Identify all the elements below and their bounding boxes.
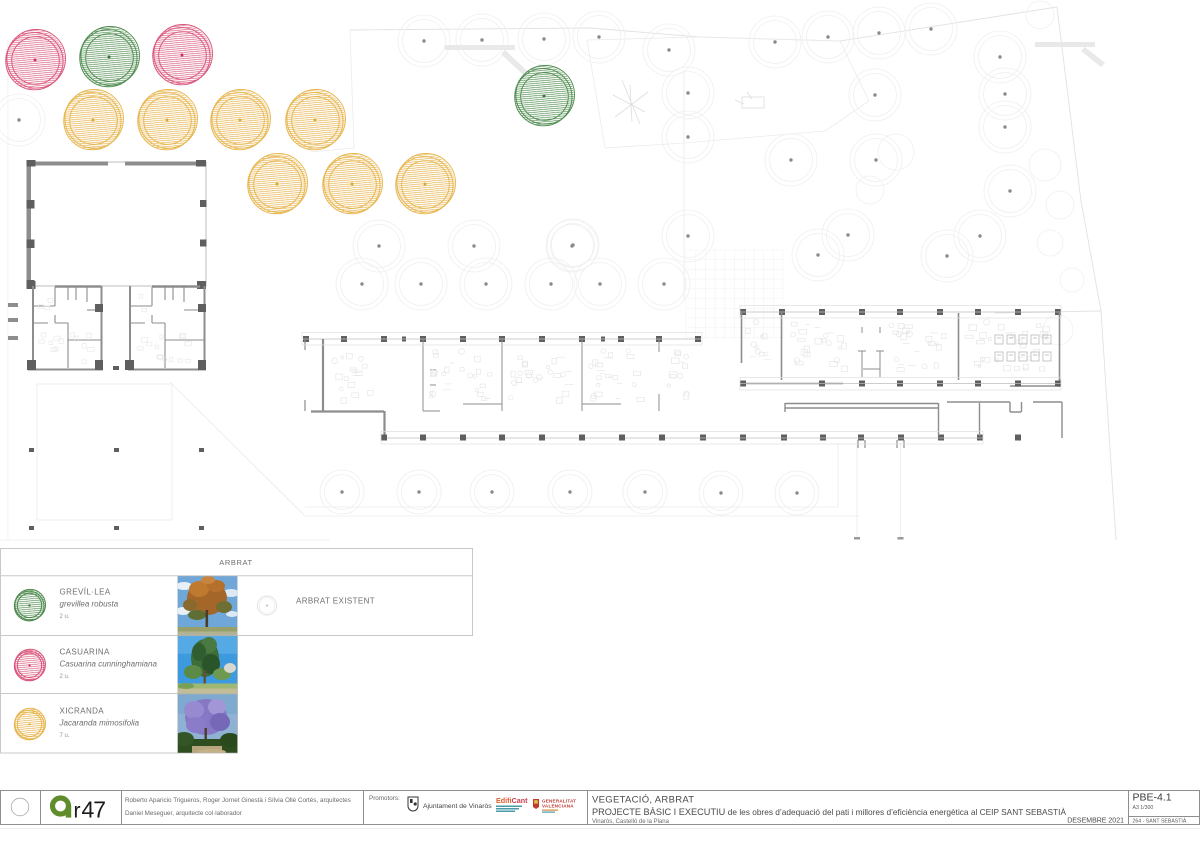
svg-text:ARBRAT EXISTENT: ARBRAT EXISTENT [296,597,375,606]
svg-text:7 u.: 7 u. [60,733,70,739]
svg-text:47: 47 [82,797,106,823]
svg-text:Casuarina cunninghamiana: Casuarina cunninghamiana [60,660,158,669]
svg-text:CASUARINA: CASUARINA [60,648,111,657]
svg-text:VEGETACIÓ, ARBRAT: VEGETACIÓ, ARBRAT [592,795,694,806]
svg-text:PBE-4.1: PBE-4.1 [1133,792,1172,804]
svg-text:Roberto Aparicio Trigueros, Ro: Roberto Aparicio Trigueros, Roger Jornet… [125,797,351,804]
svg-text:DESEMBRE 2021: DESEMBRE 2021 [1067,818,1124,825]
svg-text:Promotors:: Promotors: [369,795,400,802]
svg-text:GREVÍL·LEA: GREVÍL·LEA [60,588,111,597]
svg-text:2 u.: 2 u. [60,674,70,680]
svg-text:VALENCIANA: VALENCIANA [542,804,574,809]
svg-text:r: r [74,800,81,823]
svg-text:grevillea robusta: grevillea robusta [60,600,119,609]
svg-text:EdifiCant: EdifiCant [496,796,528,805]
svg-text:Daniel Meseguer, arquitecte co: Daniel Meseguer, arquitecte col·laborado… [125,810,242,817]
svg-text:XICRANDA: XICRANDA [60,707,105,716]
svg-text:264 - SANT SEBASTIÀ: 264 - SANT SEBASTIÀ [1133,818,1187,825]
svg-text:A3 1/300: A3 1/300 [1133,805,1154,811]
svg-text:Ajuntament de Vinaròs: Ajuntament de Vinaròs [423,803,492,810]
svg-text:PROJECTE BÀSIC I EXECUTIU de l: PROJECTE BÀSIC I EXECUTIU de les obres d… [592,807,1066,817]
svg-text:ARBRAT: ARBRAT [219,558,252,567]
svg-text:Vinaròs, Castelló de la Plana: Vinaròs, Castelló de la Plana [592,819,670,825]
svg-text:2 u.: 2 u. [60,614,70,620]
svg-text:Jacaranda mimosifolia: Jacaranda mimosifolia [59,719,140,728]
